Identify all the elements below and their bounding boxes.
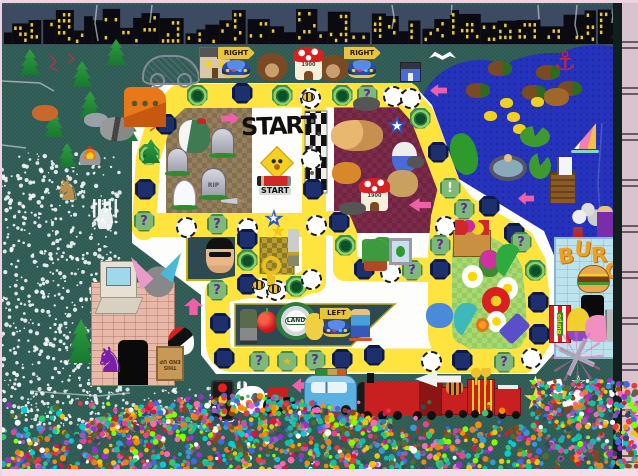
- seagull-icon: [429, 45, 456, 69]
- shipping-box: THIS END UP: [156, 346, 184, 381]
- board-space-blue[interactable]: [214, 348, 235, 369]
- alligator: [446, 130, 482, 177]
- giraffe-car: [467, 379, 495, 415]
- elvis-head: [206, 238, 234, 273]
- pink-arrow: [409, 198, 431, 212]
- cactus: [364, 239, 387, 271]
- sign-left: LEFT: [319, 307, 354, 320]
- train-locomotive: [357, 382, 443, 416]
- board-space-blue[interactable]: [452, 350, 473, 371]
- gray-car-sketch: [142, 55, 200, 85]
- board-space-dashed[interactable]: [421, 351, 442, 372]
- windsurfer: [571, 123, 599, 155]
- start-stamp-text: START: [259, 186, 291, 196]
- sign-right: RIGHT: [343, 46, 381, 60]
- pink-arrow: [430, 84, 447, 97]
- pink-arrow: [221, 112, 239, 125]
- blue-house: [400, 62, 421, 82]
- star-character-head: ★: [525, 373, 546, 394]
- bobcat: [387, 170, 418, 197]
- tombstone-ghost: [173, 180, 196, 209]
- pine-tree: [20, 49, 40, 75]
- grave-robber: [179, 120, 210, 153]
- map-right-edge: [613, 3, 622, 476]
- basket: [544, 88, 569, 106]
- rocket-icon: [314, 5, 362, 31]
- tombstone: [167, 148, 188, 175]
- headless-man: [240, 309, 257, 344]
- star-badge-inner: ★: [390, 119, 404, 133]
- board-space-blue[interactable]: [528, 292, 549, 313]
- board-space-question[interactable]: ?: [207, 280, 228, 301]
- board-space-blue[interactable]: [332, 349, 353, 370]
- pink-arrow: [518, 192, 534, 205]
- duckling: [507, 112, 520, 122]
- board-space-question[interactable]: ?: [249, 351, 270, 372]
- cypress-tree: [388, 51, 399, 81]
- board-space-blue[interactable]: [237, 229, 258, 250]
- right-film-strip: [622, 3, 638, 476]
- traffic-light: [211, 380, 234, 421]
- board-space-blue[interactable]: [232, 83, 253, 104]
- start-title-text: START: [245, 109, 311, 143]
- board-space-blue[interactable]: [303, 179, 324, 200]
- white-star: ☆: [568, 372, 589, 393]
- board-space-blue[interactable]: [529, 324, 550, 345]
- monkey: [257, 53, 287, 81]
- cat-silhouette: [339, 202, 366, 215]
- bee: [252, 280, 265, 290]
- bee: [268, 284, 281, 294]
- board-space-blue[interactable]: [210, 313, 231, 334]
- handprint: [92, 199, 118, 229]
- mushroom-house: 1900: [295, 47, 322, 80]
- tombstone-rip: RIP: [201, 168, 226, 199]
- purple-horse: ♞: [92, 341, 128, 381]
- swimmer: [489, 155, 527, 181]
- winged-monkey: [131, 253, 181, 301]
- board-space-question[interactable]: ?: [134, 211, 155, 232]
- bottom-frame: [2, 469, 638, 476]
- carousel: [323, 320, 350, 337]
- sword: [288, 229, 299, 266]
- car-blue: [304, 375, 357, 412]
- board-space-blue[interactable]: [479, 196, 500, 217]
- orange-flower: [476, 318, 489, 332]
- fox: [32, 105, 58, 121]
- board-space-blue[interactable]: [364, 345, 385, 366]
- apple: [257, 311, 277, 333]
- sign-right: RIGHT: [217, 46, 255, 60]
- tiger-car: [441, 387, 468, 415]
- board-space-alien[interactable]: [335, 235, 356, 256]
- bluebird: [426, 303, 453, 328]
- board-space-alien[interactable]: [332, 85, 353, 106]
- daisy: [462, 265, 483, 288]
- board-space-dashed[interactable]: [301, 269, 322, 290]
- sun-character: [260, 146, 294, 180]
- lilypad: [529, 153, 551, 179]
- pine-tree: [106, 39, 126, 65]
- hummingbird: [496, 244, 522, 277]
- motorcycle: [263, 388, 296, 415]
- board-space-question[interactable]: ?: [430, 235, 451, 256]
- board-space-exclaim[interactable]: !: [440, 178, 461, 199]
- cat-silhouette: [407, 156, 424, 168]
- game-board: ???!????★????♞1900RIGHTRIGHT⚓RIP★★1900★★…: [0, 0, 638, 476]
- board-space-dashed[interactable]: [176, 217, 197, 238]
- pine-tree: [72, 61, 92, 87]
- board-space-dashed[interactable]: [301, 149, 322, 170]
- lilypad: [520, 126, 550, 147]
- board-space-question[interactable]: ?: [494, 352, 515, 373]
- duckling: [531, 97, 544, 107]
- pencil: [257, 176, 291, 186]
- board-space-blue[interactable]: [430, 259, 451, 280]
- tombstone: [211, 128, 234, 157]
- pink-arrow: [184, 298, 203, 315]
- board-space-dashed[interactable]: [306, 215, 327, 236]
- cat-silhouette: [353, 97, 380, 111]
- moon-icon: [226, 7, 264, 37]
- board-space-alien[interactable]: [187, 85, 208, 106]
- duckling: [500, 98, 513, 108]
- board-space-question[interactable]: ?: [454, 199, 475, 220]
- duck: [488, 61, 512, 76]
- board-space-blue[interactable]: [428, 142, 449, 163]
- deer: ♞: [52, 173, 84, 209]
- sprite-layer: ???!????★????♞1900RIGHTRIGHT⚓RIP★★1900★★…: [2, 3, 638, 476]
- board-space-alien[interactable]: [525, 260, 546, 281]
- board-space-alien[interactable]: [237, 250, 258, 271]
- orange-cat: [332, 162, 361, 184]
- carousel: [222, 60, 250, 78]
- duckling: [484, 111, 497, 121]
- hamburger: [577, 265, 610, 293]
- caboose: [494, 388, 521, 416]
- campfire: [74, 143, 106, 165]
- duck: [536, 65, 560, 80]
- board-space-blue[interactable]: [135, 179, 156, 200]
- carousel: [348, 60, 376, 78]
- gold-star: ★: [267, 221, 289, 243]
- bee: [302, 92, 315, 102]
- board-space-alien[interactable]: [410, 108, 431, 129]
- rabbit: [234, 386, 265, 414]
- duck: [466, 83, 490, 98]
- frog-box: [389, 238, 412, 265]
- board-space-dashed[interactable]: [400, 88, 421, 109]
- hummingbird: [454, 303, 480, 336]
- skateboarder: [351, 309, 370, 342]
- cougar: [331, 120, 383, 151]
- board-space-dashed[interactable]: [521, 348, 542, 369]
- board-space-question[interactable]: ?: [207, 214, 228, 235]
- board-space-star[interactable]: ★: [277, 351, 298, 372]
- orange-barn: [124, 87, 166, 127]
- board-space-alien[interactable]: [272, 85, 293, 106]
